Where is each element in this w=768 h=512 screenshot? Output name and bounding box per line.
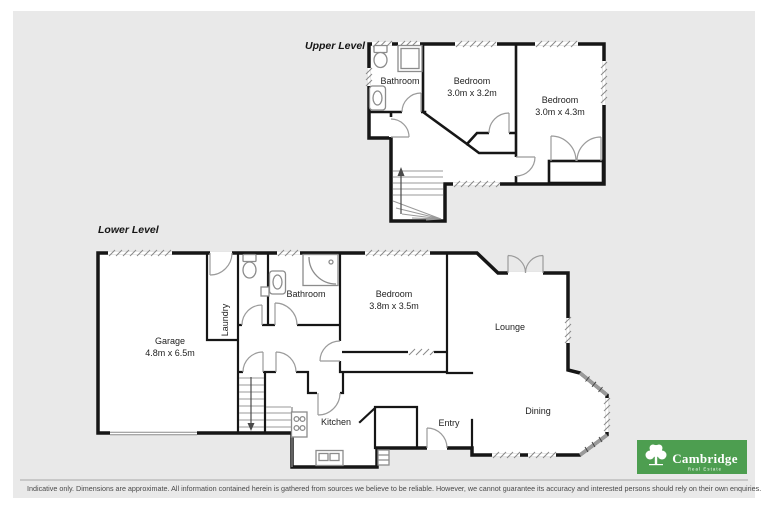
entry-label: Entry: [438, 418, 460, 428]
floorplan-canvas: Upper Level: [0, 0, 768, 512]
lounge-label: Lounge: [495, 322, 525, 332]
lower-bedroom-label: Bedroom: [376, 289, 413, 299]
wardrobe: [549, 161, 603, 183]
upper-bedroom2-dims: 3.0m x 4.3m: [535, 107, 585, 117]
garage-dims: 4.8m x 6.5m: [145, 348, 195, 358]
dining-label: Dining: [525, 406, 551, 416]
toilet-bowl-icon: [243, 262, 256, 278]
laundry-label: Laundry: [220, 303, 230, 336]
toilet-icon: [243, 255, 256, 262]
brand-logo: Cambridge Real Estate: [637, 440, 747, 474]
brand-tagline: Real Estate: [688, 467, 722, 472]
brand-name: Cambridge: [672, 451, 738, 466]
toilet-bowl-icon: [374, 53, 387, 68]
kitchen-label: Kitchen: [321, 417, 351, 427]
upper-bedroom1-dims: 3.0m x 3.2m: [447, 88, 497, 98]
cabinet-icon: [261, 287, 269, 296]
garage-label: Garage: [155, 336, 185, 346]
upper-bathroom-label: Bathroom: [380, 76, 419, 86]
lower-bathroom-label: Bathroom: [286, 289, 325, 299]
lower-level-title: Lower Level: [98, 224, 160, 236]
toilet-icon: [374, 46, 387, 53]
floorplan-page: Upper Level: [0, 0, 768, 512]
upper-bedroom1-label: Bedroom: [454, 76, 491, 86]
lower-bedroom-dims: 3.8m x 3.5m: [369, 301, 419, 311]
stove-icon: [292, 412, 308, 437]
disclaimer-text: Indicative only. Dimensions are approxim…: [27, 484, 761, 493]
upper-bedroom2-label: Bedroom: [542, 95, 579, 105]
hot-water-cupboard: [378, 450, 389, 465]
upper-level-title: Upper Level: [305, 40, 366, 52]
